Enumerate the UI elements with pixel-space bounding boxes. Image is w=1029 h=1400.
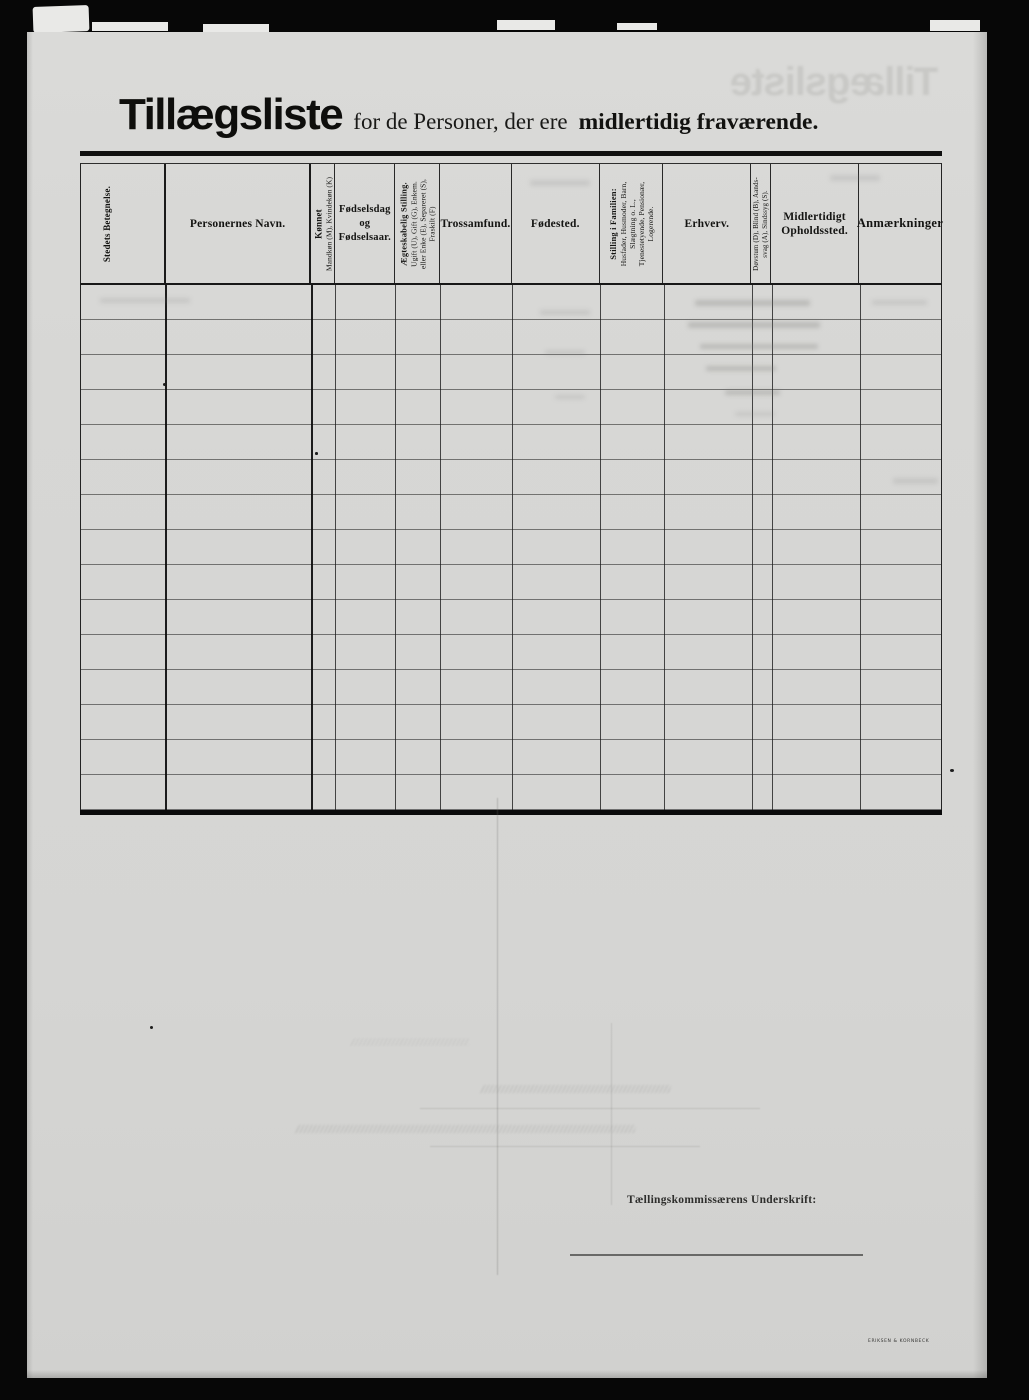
ink-fleck: [163, 383, 166, 386]
ink-fleck: [950, 769, 954, 772]
census-table: Stedets Betegnelse. Personernes Navn. Kø…: [80, 163, 942, 815]
col-header-foedselsdag: Fødselsdag og Fødselsaar.: [335, 164, 395, 283]
grid-vline: [311, 285, 313, 810]
table-body-empty-rows: [80, 285, 942, 810]
bleedthrough-smudge: [725, 390, 780, 395]
page-title: Tillægsliste for de Personer, der ere mi…: [119, 90, 818, 140]
signature-line: [570, 1254, 863, 1256]
title-subtitle: for de Personer, der ere: [353, 109, 567, 135]
bleedthrough-smudge: [100, 298, 190, 303]
col-header-stedets-betegnelse: Stedets Betegnelse.: [81, 164, 166, 283]
table-bottom-rule: [80, 810, 942, 815]
paper-sheet: Tillægsliste Tillægsliste for de Persone…: [27, 32, 987, 1378]
col-header-doevstum: Døvstum (D), Blind (B), Aands- svag (A),…: [751, 164, 771, 283]
col-header-aegteskabelig-stilling: Ægteskabelig Stilling. Ugift (U), Gift (…: [395, 164, 440, 283]
col-header-label: Stedets Betegnelse.: [102, 164, 113, 284]
bleedthrough-smudge: [830, 175, 880, 181]
col-header-stilling-i-familien: Stilling i Familien: Husfader, Husmoder,…: [600, 164, 664, 283]
col-header-anmaerkninger: Anmærkninger: [859, 164, 941, 283]
scan-streak: [33, 5, 90, 33]
col-header-sublabel: Fraskilt (F): [427, 164, 436, 284]
col-header-label: og: [359, 217, 370, 231]
bleedthrough-smudge: [872, 300, 927, 305]
col-header-personernes-navn: Personernes Navn.: [166, 164, 312, 283]
bleedthrough-smudge: [545, 350, 585, 355]
bleedthrough-smudge: [688, 322, 820, 328]
col-header-sublabel: Husfader, Husmoder, Barn,: [618, 164, 627, 284]
col-header-label: Fødested.: [531, 217, 580, 231]
grid-vline: [395, 285, 396, 810]
grid-vline: [752, 285, 753, 810]
bleedthrough-rule: [420, 1108, 760, 1109]
grid-vline: [165, 285, 167, 810]
col-header-sublabel: Logerende.: [645, 164, 654, 284]
bleedthrough-smudge: [735, 412, 775, 416]
bleedthrough-smudge: [695, 300, 810, 306]
col-header-sublabel: Ugift (U), Gift (G), Enkem.: [409, 164, 418, 284]
title-rule: [80, 151, 942, 156]
col-header-koennet: Kønnet Mandkøn (M), Kvindekøn (K): [311, 164, 335, 283]
col-header-label: Anmærkninger: [857, 216, 943, 231]
bleedthrough-smudge: [893, 478, 938, 484]
bleedthrough-smudge: [540, 310, 590, 315]
bleedthrough-rule: [430, 1146, 700, 1147]
ink-fleck: [315, 452, 318, 455]
col-header-sublabel: Døvstum (D), Blind (B), Aands-: [752, 164, 761, 284]
bleedthrough-handwriting: [294, 1125, 637, 1133]
scan-streak: [497, 20, 555, 30]
col-header-label: Erhverv.: [685, 217, 730, 231]
col-header-midlertidigt-opholdssted: Midlertidigt Opholdssted.: [771, 164, 859, 283]
col-header-sublabel: eller Enke (E), Separeret (S),: [418, 164, 427, 284]
bleedthrough-smudge: [706, 366, 776, 371]
paper-edge-shadow: [973, 32, 987, 1378]
grid-vline: [600, 285, 601, 810]
grid-vline: [335, 285, 336, 810]
title-main: Tillægsliste: [119, 90, 342, 140]
col-header-sublabel: svag (A), Sindssyg (S).: [761, 164, 770, 284]
col-header-label: Ægteskabelig Stilling.: [398, 164, 409, 284]
grid-vline: [772, 285, 773, 810]
col-header-sublabel: Slægtning o. L.,: [627, 164, 636, 284]
scan-streak: [203, 24, 269, 32]
col-header-sublabel: Tjenestetyende, Pensionær,: [636, 164, 645, 284]
paper-edge-shadow: [27, 32, 33, 1378]
col-header-label: Stilling i Familien:: [608, 164, 619, 284]
printer-imprint: ERIKSEN & KORNBECK: [868, 1339, 929, 1344]
col-header-label: Trossamfund.: [440, 217, 510, 231]
bleedthrough-handwriting: [479, 1085, 672, 1093]
signature-label: Tællingskommissærens Underskrift:: [627, 1194, 817, 1206]
fold-line: [611, 1023, 612, 1205]
col-header-trossamfund: Trossamfund.: [440, 164, 512, 283]
fold-line: [497, 798, 498, 1275]
paper-edge-shadow: [27, 1370, 987, 1378]
col-header-sublabel: Mandkøn (M), Kvindekøn (K): [324, 164, 333, 284]
grid-vline: [860, 285, 861, 810]
col-header-label: Personernes Navn.: [190, 217, 285, 231]
grid-vline: [440, 285, 441, 810]
col-header-label: Kønnet: [313, 164, 324, 284]
bleedthrough-smudge: [700, 344, 818, 349]
bleedthrough-smudge: [530, 180, 590, 186]
bleedthrough-smudge: [555, 395, 585, 399]
col-header-label: Fødselsdag: [339, 203, 391, 217]
grid-vline: [512, 285, 513, 810]
scan-streak: [930, 20, 980, 31]
col-header-erhverv: Erhverv.: [663, 164, 751, 283]
col-header-label: Opholdssted.: [781, 224, 848, 238]
table-header-row: Stedets Betegnelse. Personernes Navn. Kø…: [80, 163, 942, 285]
scanned-census-page: Tillægsliste Tillægsliste for de Persone…: [0, 0, 1029, 1400]
ink-fleck: [150, 1026, 153, 1029]
title-subtitle-bold: midlertidig fraværende.: [579, 109, 819, 136]
scan-streak: [617, 23, 657, 30]
col-header-label: Midlertidigt: [783, 210, 845, 224]
scan-streak: [92, 22, 168, 31]
grid-vline: [664, 285, 665, 810]
col-header-label: Fødselsaar.: [339, 231, 391, 245]
bleedthrough-handwriting: [349, 1038, 472, 1046]
